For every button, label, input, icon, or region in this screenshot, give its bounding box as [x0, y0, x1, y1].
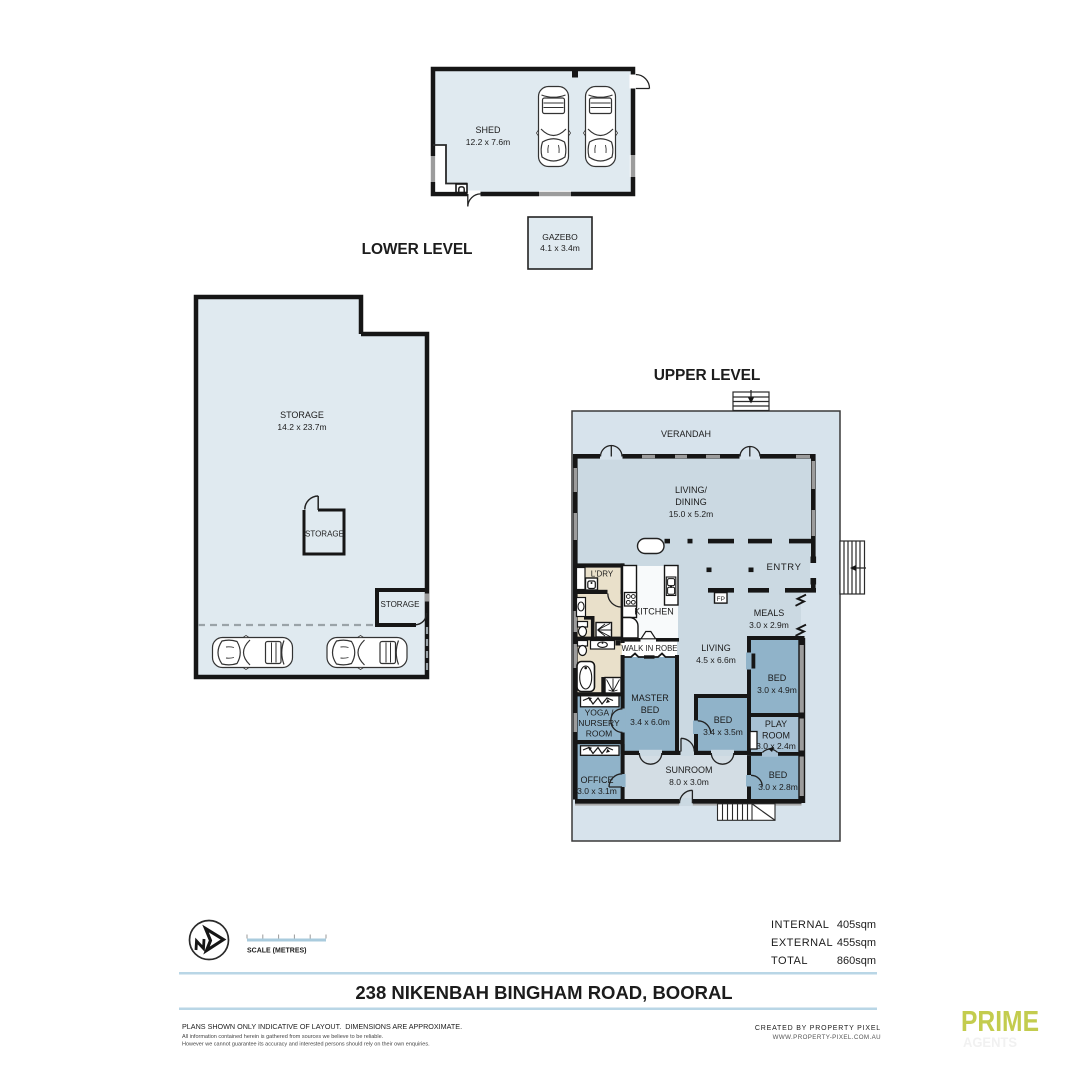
svg-text:4.5 x 6.6m: 4.5 x 6.6m: [696, 655, 736, 665]
svg-text:YOGA /: YOGA /: [585, 708, 614, 718]
svg-text:STORAGE: STORAGE: [305, 530, 344, 539]
svg-text:KITCHEN: KITCHEN: [634, 607, 674, 617]
svg-text:AGENTS: AGENTS: [963, 1034, 1017, 1050]
svg-text:3.4 x 6.0m: 3.4 x 6.0m: [630, 717, 670, 727]
svg-text:L’DRY: L’DRY: [591, 570, 614, 579]
svg-text:3.0 x 3.1m: 3.0 x 3.1m: [577, 786, 617, 796]
svg-text:3.4 x 3.5m: 3.4 x 3.5m: [703, 727, 743, 737]
svg-text:3.0 x 2.9m: 3.0 x 2.9m: [749, 620, 789, 630]
svg-text:CREATED BY PROPERTY PIXEL: CREATED BY PROPERTY PIXEL: [755, 1025, 881, 1032]
svg-text:LIVING: LIVING: [701, 643, 731, 653]
svg-text:ROOM: ROOM: [586, 729, 612, 739]
svg-text:MASTER: MASTER: [631, 693, 669, 703]
svg-text:BED: BED: [768, 673, 787, 683]
svg-text:OFFICE: OFFICE: [581, 775, 614, 785]
svg-text:STORAGE: STORAGE: [381, 600, 420, 609]
svg-text:4.1 x 3.4m: 4.1 x 3.4m: [540, 243, 580, 253]
svg-text:LOWER LEVEL: LOWER LEVEL: [362, 241, 473, 258]
svg-text:8.0 x 3.0m: 8.0 x 3.0m: [669, 777, 709, 787]
svg-text:GAZEBO: GAZEBO: [542, 232, 578, 242]
svg-text:TOTAL: TOTAL: [771, 955, 808, 967]
svg-text:PLANS SHOWN ONLY INDICATIVE OF: PLANS SHOWN ONLY INDICATIVE OF LAYOUT. D…: [182, 1022, 462, 1031]
svg-text:14.2 x 23.7m: 14.2 x 23.7m: [277, 422, 326, 432]
svg-text:15.0 x 5.2m: 15.0 x 5.2m: [669, 509, 713, 519]
svg-text:PLAY: PLAY: [765, 719, 787, 729]
svg-text:LIVING/: LIVING/: [675, 485, 708, 495]
svg-text:WWW.PROPERTY-PIXEL.COM.AU: WWW.PROPERTY-PIXEL.COM.AU: [773, 1034, 881, 1041]
svg-text:UPPER LEVEL: UPPER LEVEL: [654, 367, 761, 384]
svg-text:VERANDAH: VERANDAH: [661, 429, 711, 439]
svg-text:ROOM: ROOM: [762, 731, 790, 741]
svg-text:ENTRY: ENTRY: [766, 562, 801, 573]
svg-text:405sqm: 405sqm: [837, 919, 876, 931]
svg-text:SHED: SHED: [475, 125, 501, 135]
svg-text:DINING: DINING: [675, 497, 707, 507]
svg-text:12.2 x 7.6m: 12.2 x 7.6m: [466, 137, 510, 147]
svg-text:SUNROOM: SUNROOM: [666, 765, 713, 775]
svg-text:BED: BED: [641, 705, 660, 715]
svg-text:However we cannot guarantee it: However we cannot guarantee its accuracy…: [182, 1042, 430, 1048]
svg-text:860sqm: 860sqm: [837, 955, 876, 967]
svg-text:BED: BED: [714, 715, 733, 725]
svg-text:3.0 x 4.9m: 3.0 x 4.9m: [757, 685, 797, 695]
svg-text:NURSERY: NURSERY: [578, 718, 620, 728]
svg-text:3.0 x 2.8m: 3.0 x 2.8m: [758, 782, 798, 792]
svg-text:EXTERNAL: EXTERNAL: [771, 937, 833, 949]
svg-text:FP: FP: [717, 596, 725, 603]
svg-text:All information contained here: All information contained herein is gath…: [182, 1034, 384, 1040]
svg-text:INTERNAL: INTERNAL: [771, 919, 829, 931]
svg-text:238 NIKENBAH BINGHAM ROAD, BOO: 238 NIKENBAH BINGHAM ROAD, BOORAL: [355, 982, 732, 1003]
svg-text:SCALE (METRES): SCALE (METRES): [247, 948, 307, 955]
svg-text:3.0 x 2.4m: 3.0 x 2.4m: [756, 741, 796, 751]
svg-text:STORAGE: STORAGE: [280, 410, 324, 420]
svg-text:WALK IN ROBE: WALK IN ROBE: [621, 644, 677, 653]
svg-text:MEALS: MEALS: [754, 608, 785, 618]
svg-text:455sqm: 455sqm: [837, 937, 876, 949]
svg-text:BED: BED: [769, 770, 788, 780]
